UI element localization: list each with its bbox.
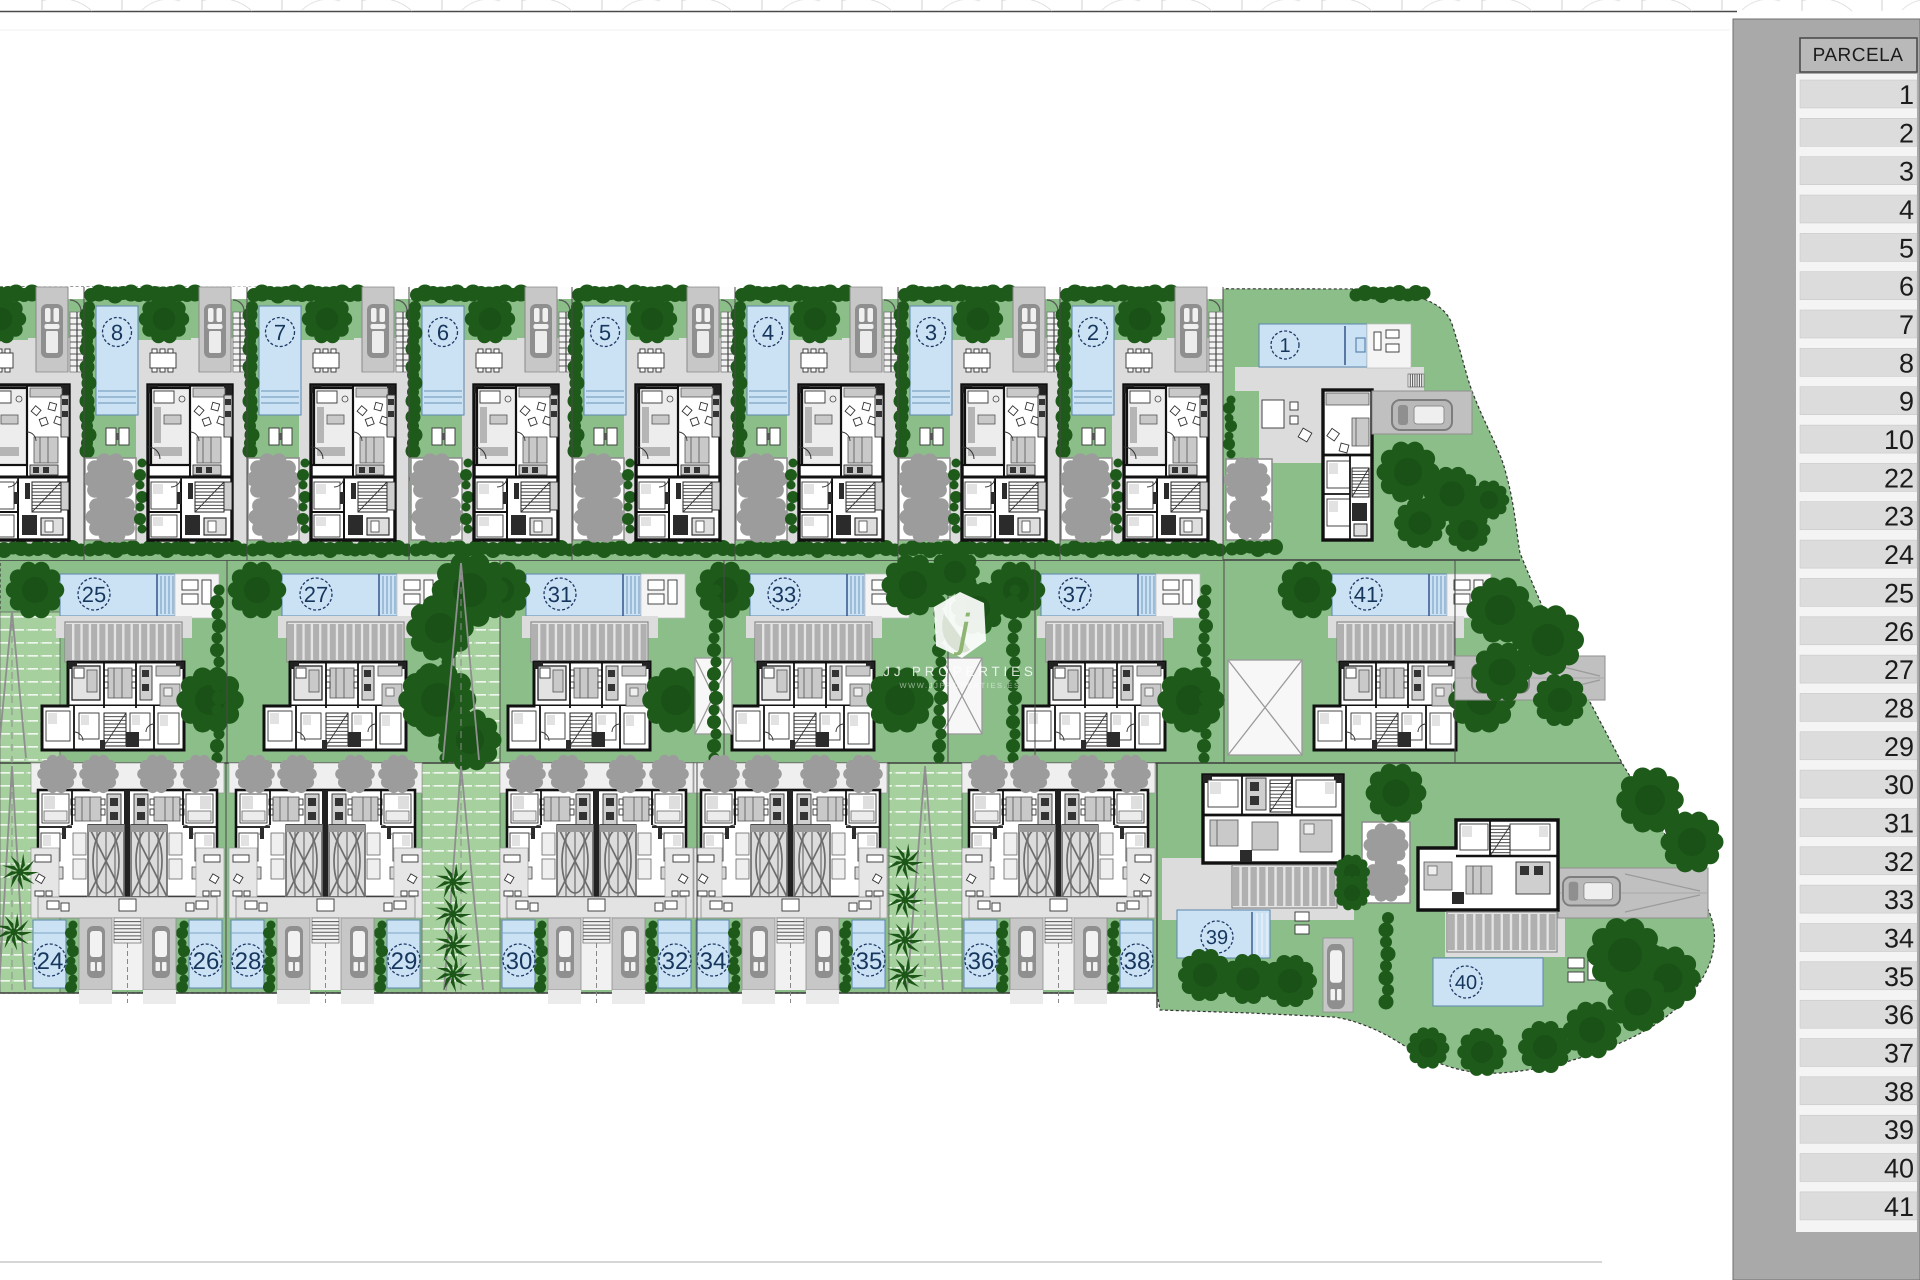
svg-text:36: 36 (968, 948, 995, 975)
svg-text:2: 2 (1899, 118, 1914, 148)
svg-text:22: 22 (1884, 463, 1914, 493)
svg-text:1: 1 (1899, 80, 1914, 110)
svg-text:PARCELA: PARCELA (1813, 45, 1904, 66)
svg-text:7: 7 (274, 320, 286, 345)
svg-text:24: 24 (1884, 540, 1914, 570)
svg-text:30: 30 (506, 948, 533, 975)
svg-text:10: 10 (1884, 425, 1914, 455)
svg-text:9: 9 (1899, 387, 1914, 417)
svg-text:5: 5 (599, 320, 611, 345)
svg-text:25: 25 (1884, 578, 1914, 608)
svg-text:30: 30 (1884, 770, 1914, 800)
svg-text:39: 39 (1206, 927, 1228, 949)
svg-text:39: 39 (1884, 1115, 1914, 1145)
svg-text:33: 33 (772, 582, 796, 607)
svg-text:28: 28 (235, 948, 262, 975)
svg-text:27: 27 (304, 582, 328, 607)
svg-text:4: 4 (1899, 195, 1914, 225)
svg-text:41: 41 (1354, 582, 1378, 607)
svg-text:26: 26 (1884, 617, 1914, 647)
svg-text:2: 2 (1087, 320, 1099, 345)
svg-text:3: 3 (925, 320, 937, 345)
svg-text:JJ PROPERTIES: JJ PROPERTIES (883, 664, 1036, 679)
svg-text:3: 3 (1899, 157, 1914, 187)
svg-text:40: 40 (1455, 972, 1477, 994)
svg-text:36: 36 (1884, 1000, 1914, 1030)
svg-text:32: 32 (662, 948, 689, 975)
svg-text:4: 4 (762, 320, 774, 345)
svg-text:29: 29 (391, 948, 418, 975)
svg-text:WWW.JJPROPERTIES.ES: WWW.JJPROPERTIES.ES (899, 681, 1020, 690)
svg-text:8: 8 (111, 320, 123, 345)
svg-text:26: 26 (193, 948, 220, 975)
svg-text:31: 31 (548, 582, 572, 607)
svg-text:6: 6 (1899, 272, 1914, 302)
svg-text:23: 23 (1884, 502, 1914, 532)
svg-text:34: 34 (700, 948, 727, 975)
svg-text:31: 31 (1884, 809, 1914, 839)
svg-text:8: 8 (1899, 348, 1914, 378)
svg-text:37: 37 (1884, 1039, 1914, 1069)
svg-text:32: 32 (1884, 847, 1914, 877)
svg-text:7: 7 (1899, 310, 1914, 340)
svg-text:38: 38 (1884, 1077, 1914, 1107)
svg-text:34: 34 (1884, 924, 1914, 954)
svg-text:29: 29 (1884, 732, 1914, 762)
svg-text:25: 25 (82, 582, 106, 607)
svg-text:27: 27 (1884, 655, 1914, 685)
svg-text:35: 35 (856, 948, 883, 975)
svg-text:40: 40 (1884, 1154, 1914, 1184)
svg-text:6: 6 (437, 320, 449, 345)
svg-text:33: 33 (1884, 885, 1914, 915)
svg-text:28: 28 (1884, 693, 1914, 723)
svg-text:24: 24 (37, 948, 64, 975)
svg-text:35: 35 (1884, 962, 1914, 992)
svg-text:41: 41 (1884, 1192, 1914, 1222)
svg-text:5: 5 (1899, 233, 1914, 263)
svg-text:1: 1 (1279, 335, 1290, 357)
svg-text:37: 37 (1063, 582, 1087, 607)
svg-text:38: 38 (1124, 948, 1151, 975)
